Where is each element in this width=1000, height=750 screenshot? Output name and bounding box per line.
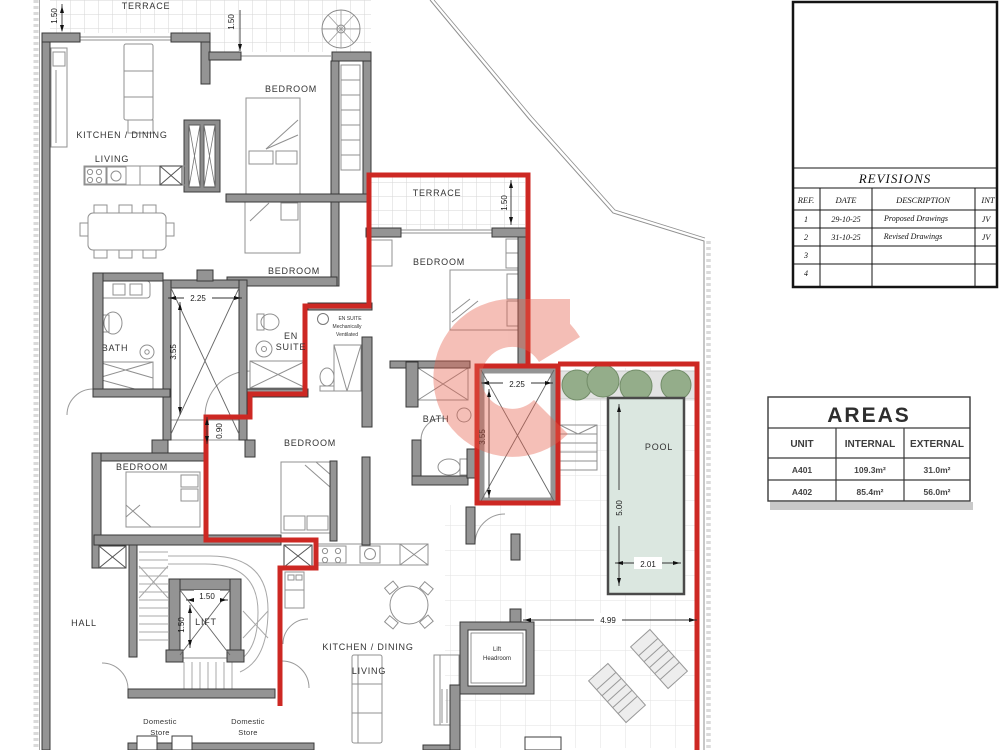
svg-text:JV: JV [982,215,992,224]
svg-text:Headroom: Headroom [483,656,511,662]
svg-text:1.50: 1.50 [500,195,509,211]
svg-text:Domestic: Domestic [143,717,177,726]
svg-text:Revised Drawings: Revised Drawings [883,232,942,241]
svg-text:DATE: DATE [835,195,858,205]
svg-text:1.50: 1.50 [227,14,236,30]
svg-text:JV: JV [982,233,992,242]
svg-text:4: 4 [804,269,808,278]
svg-text:BATH: BATH [102,343,129,353]
svg-text:31.0m²: 31.0m² [924,465,951,475]
svg-text:109.3m²: 109.3m² [854,465,886,475]
svg-text:2.25: 2.25 [190,294,206,303]
svg-text:INT: INT [980,195,996,205]
svg-text:BEDROOM: BEDROOM [116,462,168,472]
svg-text:TERRACE: TERRACE [122,1,171,11]
svg-text:4.99: 4.99 [600,616,616,625]
svg-text:LIVING: LIVING [95,154,129,164]
svg-text:2.25: 2.25 [509,380,525,389]
svg-text:REVISIONS: REVISIONS [858,171,932,186]
svg-text:EN: EN [284,331,298,341]
svg-text:56.0m²: 56.0m² [924,487,951,497]
svg-text:5.00: 5.00 [615,500,624,516]
svg-text:3.55: 3.55 [169,344,178,360]
svg-text:EN SUITE: EN SUITE [338,316,362,322]
svg-text:BEDROOM: BEDROOM [265,84,317,94]
svg-text:EXTERNAL: EXTERNAL [910,439,964,450]
svg-text:Mechanically: Mechanically [333,324,362,330]
svg-text:KITCHEN / DINING: KITCHEN / DINING [322,642,413,652]
svg-text:29-10-25: 29-10-25 [831,215,860,224]
svg-text:2: 2 [804,233,808,242]
svg-text:DESCRIPTION: DESCRIPTION [895,195,951,205]
svg-text:REF.: REF. [797,195,815,205]
svg-text:TERRACE: TERRACE [413,188,462,198]
svg-text:1.50: 1.50 [177,617,186,633]
svg-text:BEDROOM: BEDROOM [284,438,336,448]
svg-text:BEDROOM: BEDROOM [268,266,320,276]
svg-text:2.01: 2.01 [640,560,656,569]
svg-text:LIFT: LIFT [195,617,217,627]
svg-text:KITCHEN / DINING: KITCHEN / DINING [76,130,167,140]
svg-text:1.50: 1.50 [50,8,59,24]
svg-text:Store: Store [238,728,257,737]
svg-text:Lift: Lift [493,647,501,653]
svg-text:1: 1 [804,215,808,224]
svg-text:A401: A401 [792,465,813,475]
svg-text:HALL: HALL [71,618,97,628]
svg-text:3: 3 [803,251,808,260]
svg-text:BEDROOM: BEDROOM [413,257,465,267]
svg-text:31-10-25: 31-10-25 [830,233,860,242]
svg-text:UNIT: UNIT [790,439,813,450]
svg-text:AREAS: AREAS [827,404,911,427]
svg-text:85.4m²: 85.4m² [857,487,884,497]
svg-text:POOL: POOL [645,442,673,452]
svg-text:SUITE: SUITE [276,342,307,352]
svg-text:0.90: 0.90 [215,423,224,439]
svg-text:INTERNAL: INTERNAL [845,439,896,450]
svg-text:Proposed Drawings: Proposed Drawings [883,214,948,223]
svg-text:Domestic: Domestic [231,717,265,726]
svg-text:LIVING: LIVING [352,666,386,676]
svg-text:Store: Store [150,728,169,737]
svg-text:Ventilated: Ventilated [336,332,358,338]
svg-text:1.50: 1.50 [199,592,215,601]
svg-text:A402: A402 [792,487,813,497]
